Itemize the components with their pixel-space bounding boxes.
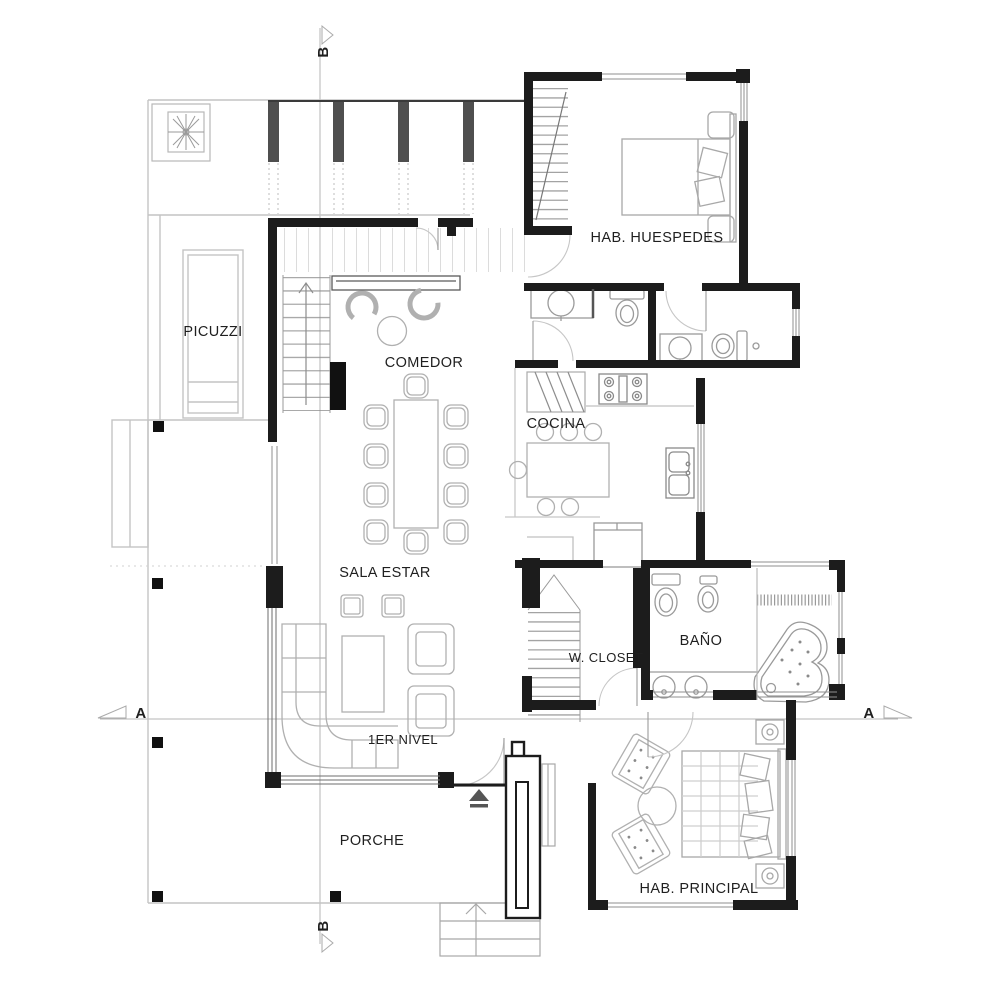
section-marker-b-bottom: B bbox=[315, 920, 333, 952]
entry-planter bbox=[542, 764, 555, 846]
room-label-sala-estar: SALA ESTAR bbox=[339, 565, 431, 581]
lounge-chair bbox=[409, 289, 439, 319]
guest-bed bbox=[622, 112, 736, 242]
armchair bbox=[408, 624, 454, 674]
entrance-arrow-icon bbox=[469, 789, 489, 808]
master-round-table bbox=[638, 787, 676, 825]
section-b-bottom-label: B bbox=[315, 920, 332, 931]
terrace-posts bbox=[152, 362, 346, 902]
section-a-left-label: A bbox=[135, 705, 146, 722]
round-side-table bbox=[378, 317, 407, 346]
room-label-hab-huespedes: HAB. HUESPEDES bbox=[591, 230, 724, 246]
level-note: 1ER NIVEL bbox=[368, 732, 438, 747]
floor-plan-svg: B B A A PICUZZI COMEDOR COCINA HAB. HUES… bbox=[0, 0, 1000, 1000]
suite-bath-fixtures bbox=[660, 331, 759, 364]
master-bed bbox=[682, 720, 786, 888]
lounge-chair bbox=[342, 287, 381, 326]
master-chair bbox=[611, 813, 671, 876]
section-b-top-label: B bbox=[315, 46, 332, 57]
room-label-bano: BAÑO bbox=[680, 632, 723, 649]
stove bbox=[599, 374, 647, 404]
jacuzzi-tub bbox=[754, 600, 832, 702]
side-tables bbox=[341, 595, 404, 617]
coffee-table bbox=[342, 636, 384, 712]
sliding-glass-walls bbox=[268, 608, 440, 784]
room-label-porche: PORCHE bbox=[340, 833, 404, 849]
armchair bbox=[408, 686, 454, 736]
kitchen-sink bbox=[666, 448, 694, 498]
room-label-w-closet: W. CLOSET bbox=[569, 650, 643, 665]
pergola-column-projections bbox=[269, 163, 473, 214]
tree-icon bbox=[168, 114, 204, 150]
room-label-cocina: COCINA bbox=[527, 416, 586, 432]
guest-bath-fixtures bbox=[531, 289, 644, 326]
room-label-picuzzi: PICUZZI bbox=[183, 324, 242, 340]
pergola-columns bbox=[268, 102, 474, 162]
dining-table bbox=[394, 400, 438, 528]
stairs-kitchen bbox=[527, 372, 585, 412]
kitchen-island bbox=[527, 443, 609, 497]
section-a-right-label: A bbox=[863, 705, 874, 722]
buffet-bar bbox=[332, 276, 460, 290]
section-marker-b-top: B bbox=[315, 26, 333, 58]
room-label-hab-principal: HAB. PRINCIPAL bbox=[640, 881, 759, 897]
room-label-comedor: COMEDOR bbox=[385, 355, 464, 371]
island-stools bbox=[510, 424, 602, 516]
master-chair bbox=[611, 733, 671, 796]
dining-chairs bbox=[364, 374, 468, 554]
entry-feature-wall bbox=[506, 742, 540, 918]
stairs-guest bbox=[536, 88, 566, 224]
stairs-main bbox=[283, 275, 330, 413]
floor-plan-sheet: B B A A PICUZZI COMEDOR COCINA HAB. HUES… bbox=[0, 0, 1000, 1000]
